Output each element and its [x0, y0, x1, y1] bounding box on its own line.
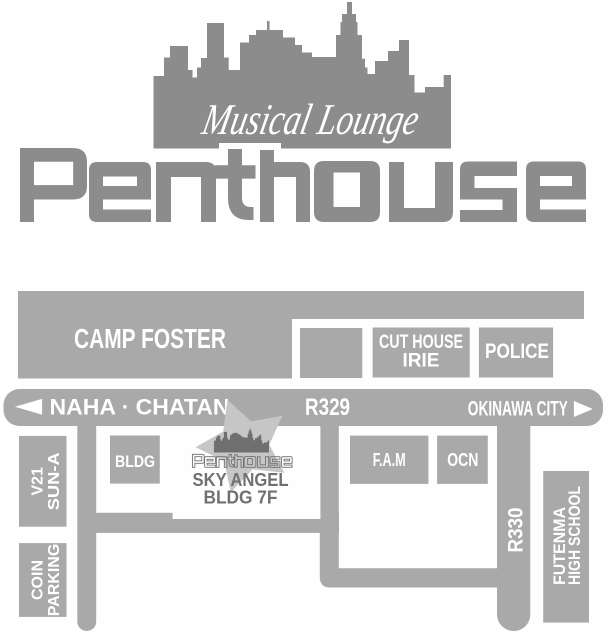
svg-text:POLICE: POLICE	[485, 340, 549, 363]
svg-text:BLDG 7F: BLDG 7F	[204, 488, 278, 508]
svg-text:IRIE: IRIE	[403, 351, 440, 372]
svg-text:HIGH SCHOOL: HIGH SCHOOL	[565, 486, 584, 585]
svg-text:OCN: OCN	[447, 450, 478, 470]
svg-text:PARKING: PARKING	[46, 544, 63, 617]
svg-text:SUN-A: SUN-A	[46, 452, 63, 511]
svg-text:NAHA · CHATAN: NAHA · CHATAN	[50, 395, 230, 420]
svg-text:R329: R329	[305, 394, 350, 421]
svg-text:BLDG: BLDG	[115, 452, 155, 471]
svg-text:R330: R330	[505, 508, 528, 553]
svg-text:OKINAWA CITY: OKINAWA CITY	[468, 398, 568, 421]
svg-text:CAMP FOSTER: CAMP FOSTER	[74, 323, 226, 354]
svg-text:COIN: COIN	[30, 560, 47, 600]
svg-text:Musical Lounge: Musical Lounge	[198, 94, 424, 143]
svg-text:F.A.M: F.A.M	[373, 450, 406, 470]
svg-text:V21: V21	[30, 467, 47, 496]
